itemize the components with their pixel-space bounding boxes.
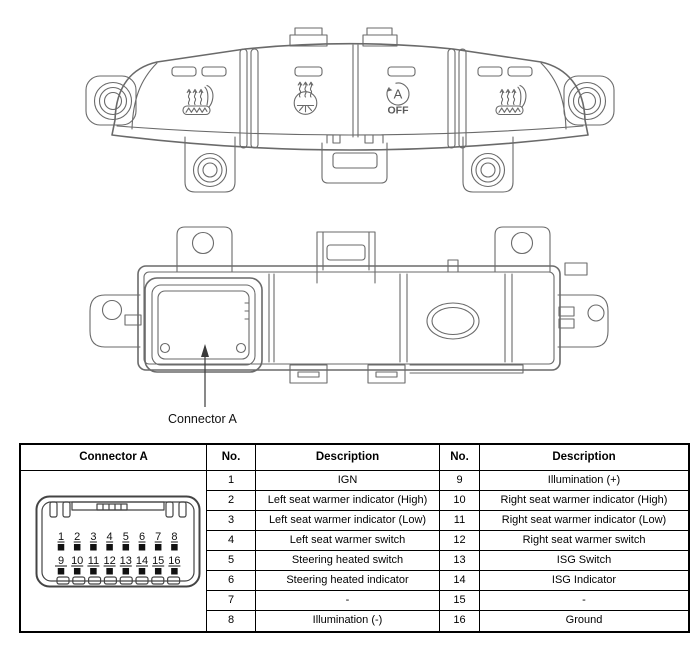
connector-a-socket <box>145 278 262 372</box>
pin-position-marker <box>74 568 81 575</box>
pin-description-cell: Steering heated switch <box>256 551 440 571</box>
steering-heat-indicator-window <box>295 67 322 76</box>
pin-number-cell: 12 <box>440 531 480 551</box>
right-mount-ear <box>564 76 614 125</box>
pin-position-marker <box>106 568 113 575</box>
pin-position-marker <box>139 568 146 575</box>
pin-description-cell: ISG Indicator <box>480 571 688 591</box>
pin-number-label: 8 <box>171 531 177 543</box>
pin-description-cell: - <box>256 591 440 611</box>
pin-number-label: 6 <box>139 531 145 543</box>
header-no-left: No. <box>207 445 256 471</box>
callout-label: Connector A <box>168 412 237 426</box>
header-no-right: No. <box>440 445 480 471</box>
pin-description-cell: Illumination (-) <box>256 611 440 631</box>
pin-number-label: 2 <box>74 531 80 543</box>
pin-position-marker <box>123 544 130 551</box>
right-seat-indicator-window-2 <box>508 67 532 76</box>
pin-number-label: 14 <box>136 555 148 567</box>
pin-number-cell: 7 <box>207 591 256 611</box>
isg-off-icon: A OFF <box>387 83 409 117</box>
header-connector-a: Connector A <box>21 445 207 471</box>
pin-number-cell: 13 <box>440 551 480 571</box>
rear-housing <box>138 266 560 370</box>
pin-description-cell: Left seat warmer indicator (High) <box>256 491 440 511</box>
figure-page: A OFF <box>0 0 700 663</box>
isg-off-label: OFF <box>388 105 410 117</box>
rear-bottom-tabs <box>290 365 523 383</box>
pin-description-cell: Left seat warmer indicator (Low) <box>256 511 440 531</box>
left-seat-indicator-window <box>172 67 196 76</box>
pin-position-marker <box>155 544 162 551</box>
pin-description-cell: Left seat warmer switch <box>256 531 440 551</box>
pin-number-cell: 6 <box>207 571 256 591</box>
callout-arrowhead <box>201 344 209 357</box>
pin-number-cell: 4 <box>207 531 256 551</box>
left-seat-indicator-window-2 <box>202 67 226 76</box>
pin-number-label: 13 <box>120 555 132 567</box>
rear-left-ear <box>90 295 141 347</box>
connector-pin-table: Connector A No. Description No. Descript… <box>19 443 690 633</box>
pin-number-label: 15 <box>152 555 164 567</box>
connector-inset-svg: 12345678910111213141516 <box>35 495 201 588</box>
pin-position-marker <box>123 568 130 575</box>
oval-opening <box>427 303 479 339</box>
header-description-right: Description <box>480 445 688 471</box>
pin-number-cell: 15 <box>440 591 480 611</box>
pin-number-cell: 3 <box>207 511 256 531</box>
pin-description-cell: Steering heated indicator <box>256 571 440 591</box>
pin-number-cell: 5 <box>207 551 256 571</box>
pin-number-label: 3 <box>90 531 96 543</box>
rear-right-ear <box>558 263 608 347</box>
pin-number-label: 10 <box>71 555 83 567</box>
bottom-connector-tab <box>322 135 387 183</box>
front-view-diagram: A OFF <box>85 25 615 200</box>
pin-description-cell: Right seat warmer switch <box>480 531 688 551</box>
pin-position-marker <box>139 544 146 551</box>
pin-number-label: 16 <box>168 555 180 567</box>
pin-description-cell: IGN <box>256 471 440 491</box>
right-seat-indicator-window <box>478 67 502 76</box>
pin-number-cell: 11 <box>440 511 480 531</box>
connector-a-callout: Connector A <box>168 344 237 426</box>
pin-number-label: 7 <box>155 531 161 543</box>
isg-indicator-window <box>388 67 415 76</box>
pin-position-marker <box>58 544 65 551</box>
right-seat-warmer-icon <box>496 86 526 115</box>
isg-letter: A <box>394 87 403 102</box>
pin-number-label: 4 <box>107 531 113 543</box>
pin-numbers-group: 12345678910111213141516 <box>55 531 181 575</box>
pin-number-cell: 10 <box>440 491 480 511</box>
pin-number-label: 5 <box>123 531 129 543</box>
pin-number-label: 9 <box>58 555 64 567</box>
pin-description-cell: Right seat warmer indicator (High) <box>480 491 688 511</box>
pin-position-marker <box>155 568 162 575</box>
pin-number-cell: 16 <box>440 611 480 631</box>
connector-latch-details <box>50 502 186 517</box>
pin-number-cell: 9 <box>440 471 480 491</box>
pin-position-marker <box>171 568 178 575</box>
pin-number-cell: 2 <box>207 491 256 511</box>
pin-position-marker <box>74 544 81 551</box>
pin-number-label: 1 <box>58 531 64 543</box>
pin-description-cell: Right seat warmer indicator (Low) <box>480 511 688 531</box>
pin-position-marker <box>171 544 178 551</box>
header-description-left: Description <box>256 445 440 471</box>
pin-description-cell: - <box>480 591 688 611</box>
pin-number-cell: 14 <box>440 571 480 591</box>
left-seat-warmer-icon <box>183 86 213 115</box>
left-mount-ear <box>86 76 136 125</box>
rear-connector-shroud <box>317 232 375 283</box>
pin-number-label: 11 <box>88 555 99 567</box>
rear-view-diagram: Connector A <box>85 215 615 430</box>
pin-position-marker <box>90 544 97 551</box>
pin-position-marker <box>90 568 97 575</box>
pin-description-cell: Illumination (+) <box>480 471 688 491</box>
heated-steering-icon <box>294 82 317 114</box>
pin-position-marker <box>106 544 113 551</box>
pin-description-cell: ISG Switch <box>480 551 688 571</box>
pin-number-cell: 8 <box>207 611 256 631</box>
connector-a-pinout-drawing: 12345678910111213141516 <box>21 471 207 631</box>
panel-body <box>112 44 588 150</box>
top-tab-left <box>290 28 327 46</box>
indicator-windows <box>172 67 532 76</box>
pin-number-cell: 1 <box>207 471 256 491</box>
pin-position-marker <box>58 568 65 575</box>
pin-number-label: 12 <box>103 555 115 567</box>
pin-description-cell: Ground <box>480 611 688 631</box>
